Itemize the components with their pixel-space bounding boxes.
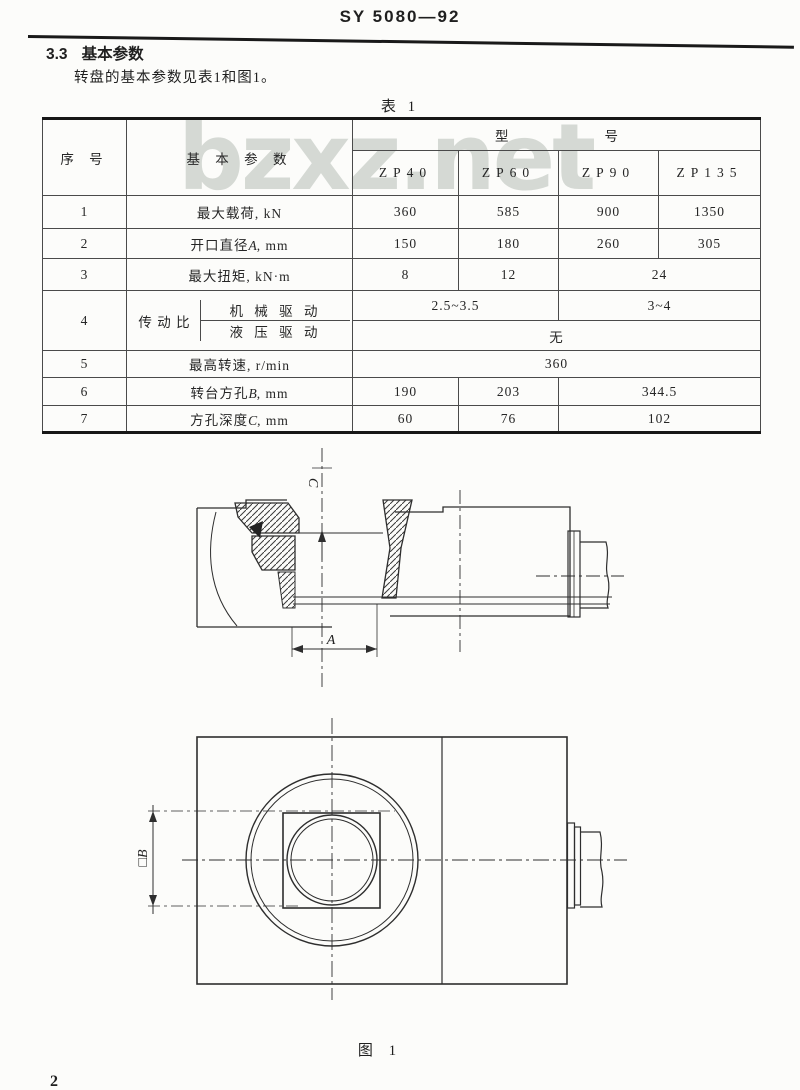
header-param: 基 本 参 数 — [127, 119, 353, 196]
cell-value: 180 — [459, 229, 559, 259]
rotary-table-plan-drawing: □B — [120, 710, 640, 1010]
header-index: 序 号 — [43, 119, 127, 196]
cell-value: 1350 — [659, 196, 761, 229]
cell-value: 8 — [353, 259, 459, 291]
cell-value: 2.5~3.5 — [353, 291, 559, 321]
model-zp60: ZP60 — [459, 151, 559, 196]
cell-value: 190 — [353, 378, 459, 406]
section-number: 3.3 — [46, 46, 68, 63]
row-no: 7 — [43, 406, 127, 433]
cell-value: 无 — [353, 321, 761, 351]
model-group-char-1: 型 — [495, 125, 509, 145]
param-label: 转台方孔B, mm — [127, 378, 353, 406]
row-no: 1 — [43, 196, 127, 229]
dimension-c-label: C — [305, 478, 320, 488]
param-label-ratio: 传 动 比 机 械 驱 动 液 压 驱 动 — [127, 291, 353, 351]
cell-value: 24 — [559, 259, 761, 291]
model-group-char-2: 号 — [605, 125, 619, 145]
cell-value: 585 — [459, 196, 559, 229]
page-number: 2 — [50, 1073, 58, 1090]
cell-value: 360 — [353, 196, 459, 229]
cell-value: 3~4 — [559, 291, 761, 321]
row-no: 2 — [43, 229, 127, 259]
cell-value: 102 — [559, 406, 761, 433]
intro-paragraph: 转盘的基本参数见表1和图1。 — [74, 66, 277, 87]
table-row: 6 转台方孔B, mm 190 203 344.5 — [43, 378, 761, 406]
cell-value: 150 — [353, 229, 459, 259]
rotary-table-section-drawing: C A — [175, 445, 645, 690]
row-no: 4 — [43, 291, 127, 351]
row-no: 6 — [43, 378, 127, 406]
row-no: 5 — [43, 351, 127, 378]
param-label: 最大载荷, kN — [127, 196, 353, 229]
table-row: 4 传 动 比 机 械 驱 动 液 压 驱 动 2.5~3.5 3~4 — [43, 291, 761, 321]
table-row: 1 最大载荷, kN 360 585 900 1350 — [43, 196, 761, 229]
cell-value: 203 — [459, 378, 559, 406]
table-row: 5 最高转速, r/min 360 — [43, 351, 761, 378]
header-model-group: 型 号 — [353, 119, 761, 151]
cell-value: 60 — [353, 406, 459, 433]
figure-caption: 图 1 — [320, 1039, 440, 1060]
section-title: 基本参数 — [82, 46, 144, 63]
ratio-sub-hydraulic: 液 压 驱 动 — [201, 321, 350, 341]
dimension-a-label: A — [326, 633, 336, 648]
section-heading: 3.3基本参数 — [46, 42, 144, 64]
model-zp135: ZP135 — [659, 151, 761, 196]
standard-code: SY 5080—92 — [0, 7, 800, 27]
cell-value: 344.5 — [559, 378, 761, 406]
dimension-b-label: □B — [136, 849, 151, 866]
param-label: 最大扭矩, kN·m — [127, 259, 353, 291]
table-row: 2 开口直径A, mm 150 180 260 305 — [43, 229, 761, 259]
param-label: 最高转速, r/min — [127, 351, 353, 378]
table-row: 3 最大扭矩, kN·m 8 12 24 — [43, 259, 761, 291]
parameters-table: 序 号 基 本 参 数 型 号 ZP40 ZP60 ZP90 ZP135 — [42, 117, 761, 434]
cell-value: 305 — [659, 229, 761, 259]
model-zp90: ZP90 — [559, 151, 659, 196]
document-page: SY 5080—92 3.3基本参数 转盘的基本参数见表1和图1。 表 1 bz… — [0, 0, 800, 1090]
cell-value: 12 — [459, 259, 559, 291]
cell-value: 900 — [559, 196, 659, 229]
cell-value: 260 — [559, 229, 659, 259]
model-zp40: ZP40 — [353, 151, 459, 196]
ratio-label: 传 动 比 — [129, 300, 201, 341]
table-row: 7 方孔深度C, mm 60 76 102 — [43, 406, 761, 433]
cell-value: 360 — [353, 351, 761, 378]
param-label: 开口直径A, mm — [127, 229, 353, 259]
param-label: 方孔深度C, mm — [127, 406, 353, 433]
ratio-sub-mechanical: 机 械 驱 动 — [201, 300, 350, 321]
row-no: 3 — [43, 259, 127, 291]
cell-value: 76 — [459, 406, 559, 433]
